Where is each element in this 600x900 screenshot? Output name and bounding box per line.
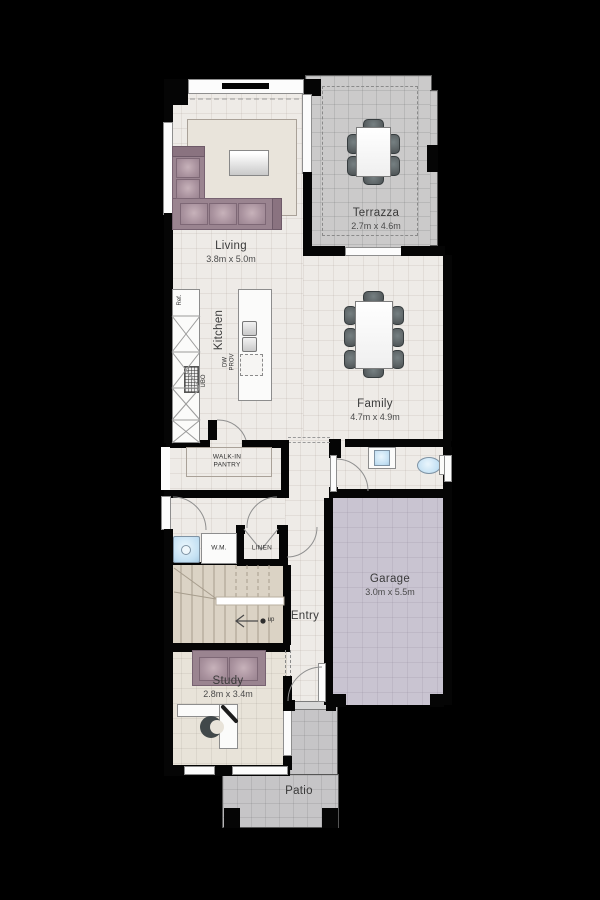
entry-label: Entry: [291, 610, 319, 622]
terrazza-dims: 2.7m x 4.6m: [351, 221, 401, 231]
front-wall: [283, 700, 295, 711]
living-label: Living: [215, 240, 247, 252]
family-label: Family: [357, 398, 393, 410]
powder-window: [444, 455, 452, 482]
ceiling-break-line: [288, 442, 330, 443]
sofa-cushion: [176, 158, 200, 178]
sofa-cushion: [238, 203, 266, 225]
kitchen-label: Kitchen: [213, 310, 225, 350]
study-dims: 2.8m x 3.4m: [203, 689, 253, 699]
wall: [401, 246, 445, 256]
sofa-cushion: [180, 203, 208, 225]
wall-recess: [161, 447, 170, 490]
cooktop: [184, 366, 199, 393]
front-door-leaf: [318, 663, 326, 702]
patio-label: Patio: [285, 785, 313, 797]
wall: [303, 172, 312, 250]
sofa-arm: [272, 198, 282, 230]
stairs-floor: [170, 565, 284, 643]
wall: [443, 255, 452, 441]
dishwasher-label: DW PROV: [223, 353, 236, 370]
vanity-basin: [374, 450, 390, 466]
pantry-label-line2: PANTRY: [214, 462, 241, 469]
study-window: [232, 766, 288, 775]
garage-dims: 3.0m x 5.5m: [365, 587, 415, 597]
oven-label: UBO: [201, 374, 207, 387]
wall: [208, 420, 217, 440]
wall: [303, 246, 345, 256]
washing-machine-label: W.M.: [211, 545, 227, 552]
study-window: [184, 766, 215, 775]
laundry-tub-bowl: [181, 545, 191, 555]
pantry-wall: [164, 490, 289, 498]
family-terrazza-window: [345, 247, 403, 256]
terrazza-table: [356, 127, 391, 177]
study-side-window: [283, 704, 292, 756]
hall-door-opening: [161, 496, 171, 530]
stairs-wall: [283, 565, 291, 645]
terrazza-label: Terrazza: [353, 207, 400, 219]
patio-pillar-left: [224, 808, 240, 828]
study-cased-opening: [290, 650, 291, 678]
study-left-wall: [164, 645, 173, 769]
dishwasher-provision: [240, 354, 263, 376]
fridge-label: Ref.: [177, 294, 183, 305]
stairs-up-label: up: [268, 617, 275, 623]
garage-door-jamb: [430, 694, 444, 707]
living-dims: 3.8m x 5.0m: [206, 254, 256, 264]
island-sink: [242, 337, 257, 352]
terrazza-edge-lower: [430, 168, 438, 246]
patio-upper-floor: [289, 706, 338, 776]
linen-label: LINEN: [252, 545, 272, 552]
coffee-table: [229, 150, 269, 176]
wall: [427, 145, 438, 172]
office-chair-seat: [210, 720, 224, 734]
toilet-cistern: [439, 455, 445, 475]
wall: [345, 439, 451, 447]
sofa-cushion: [176, 179, 200, 199]
garage-label: Garage: [370, 573, 410, 585]
study-label: Study: [213, 675, 244, 687]
garage-top-wall: [329, 489, 452, 498]
family-dims: 4.7m x 4.9m: [350, 412, 400, 422]
patio-pillar-right: [322, 808, 338, 828]
front-wall: [326, 700, 336, 711]
floor-plan: Living 3.8m x 5.0m Terrazza 2.7m x 4.6m …: [0, 0, 600, 900]
garage-floor: [332, 497, 444, 705]
toilet: [417, 457, 441, 474]
ceiling-break-line: [288, 437, 330, 438]
pantry-label-line1: WALK-IN: [213, 454, 241, 461]
garage-right-wall: [443, 498, 452, 705]
sofa-arm: [172, 146, 205, 157]
living-window-sash: [222, 83, 269, 89]
terrazza-sliding-door: [302, 94, 312, 174]
dining-table: [355, 301, 393, 369]
powder-door-leaf: [330, 455, 337, 492]
terrazza-edge-upper: [430, 90, 438, 148]
wall: [164, 79, 173, 124]
wall: [164, 529, 173, 645]
sofa-cushion: [209, 203, 237, 225]
island-sink: [242, 321, 257, 336]
study-cased-opening: [285, 650, 286, 678]
